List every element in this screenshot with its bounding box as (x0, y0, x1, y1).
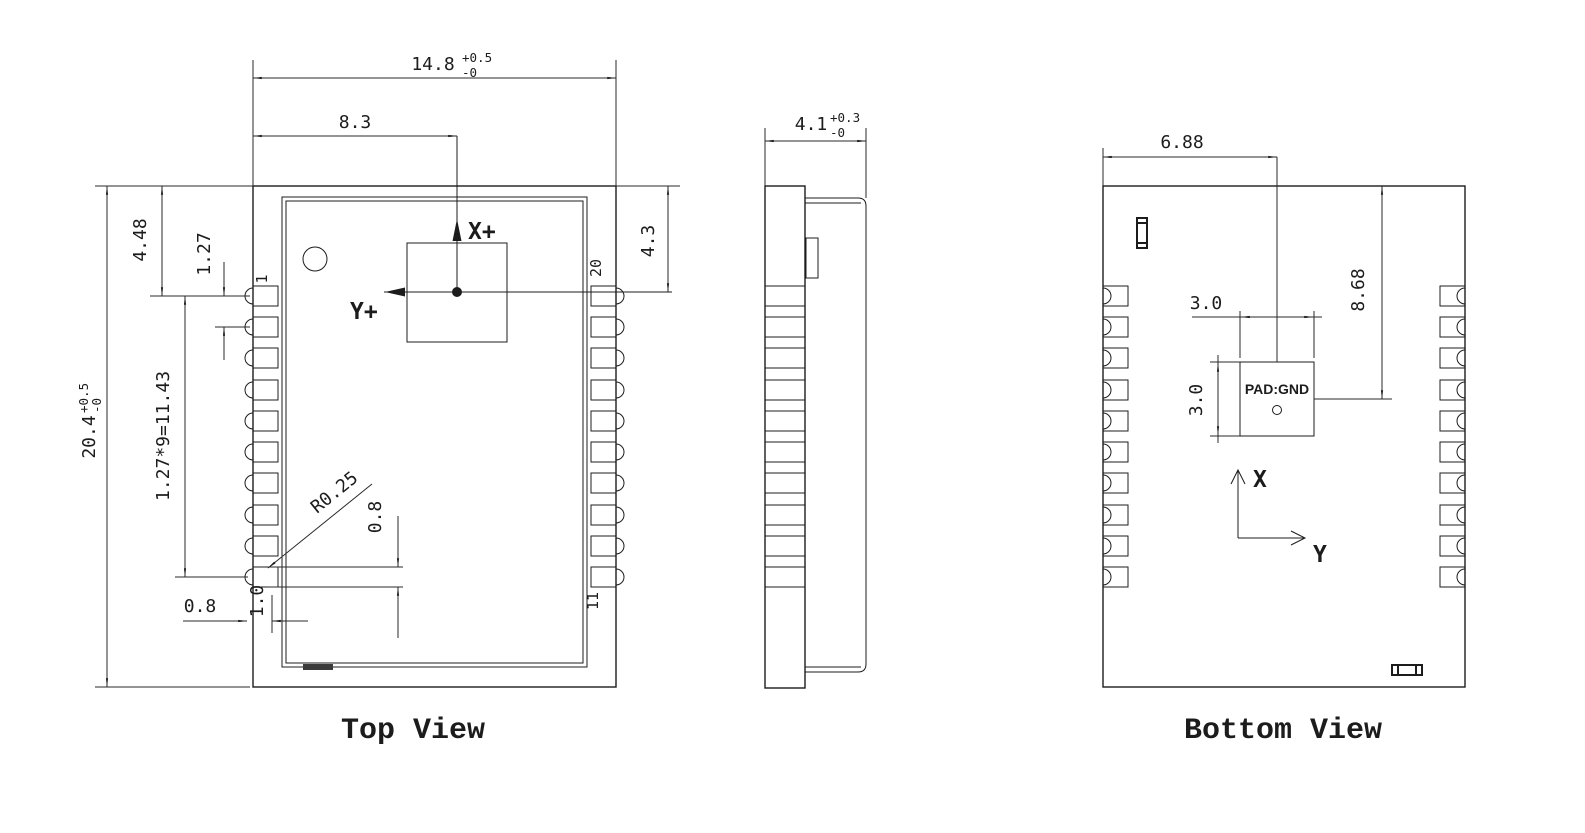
dim-pad-center-from-left: 6.88 (1103, 132, 1277, 362)
castellated-pin (1103, 536, 1128, 556)
dim-height-tol-minus: -0 (89, 398, 104, 413)
dim-pitch-total: 1.27*9=11.43 (153, 296, 248, 577)
dim-center-offset-y: 4.3 (616, 186, 680, 292)
dim-pad-width-value: 0.8 (365, 501, 386, 534)
dim-pad-length-value: 1.0 (247, 585, 268, 618)
side-pad-stripe (765, 536, 805, 556)
mechanical-drawing-page: X+ Y+ 1 20 11 14.8 +0.5 -0 8.3 (0, 0, 1585, 833)
bottom-view-component-top (1137, 218, 1147, 248)
castellated-pin (591, 442, 624, 462)
dim-radius-value: R0.25 (307, 468, 362, 518)
dim-gnd-pad-width: 3.0 (1190, 293, 1322, 358)
dim-gnd-pad-height: 3.0 (1186, 355, 1240, 443)
dim-pitch-total-value: 1.27*9=11.43 (153, 371, 174, 501)
side-pad-stripe (765, 411, 805, 431)
castellated-pin (245, 536, 278, 556)
castellated-pin (1103, 473, 1128, 493)
shield-tab (303, 664, 333, 670)
castellated-pin (1440, 505, 1465, 525)
pin1-indicator-circle (303, 247, 327, 271)
bottom-view: PAD:GND 6.88 8.68 3.0 (1103, 132, 1465, 748)
castellated-pin (1103, 286, 1128, 306)
castellated-pin (1440, 380, 1465, 400)
dim-thickness-tol-minus: -0 (830, 125, 845, 140)
side-pad-stripe (765, 286, 805, 306)
dim-pin1-offset-value: 4.48 (130, 218, 151, 261)
bottom-view-component-bottom (1392, 665, 1422, 675)
castellated-pin (1440, 536, 1465, 556)
side-view-pad-stripes (765, 286, 805, 587)
castellated-pin (245, 567, 278, 587)
side-pad-stripe (765, 442, 805, 462)
castellated-pin (1103, 411, 1128, 431)
castellated-pin (245, 505, 278, 525)
top-view-shield-outer (282, 197, 587, 667)
castellated-pin (591, 380, 624, 400)
dim-pin1-from-top: 4.48 (130, 186, 250, 296)
x-plus-arrowhead (453, 219, 462, 241)
bottom-view-pins-right (1440, 286, 1465, 587)
castellated-pin (591, 567, 624, 587)
top-view-shield-inner (286, 201, 583, 663)
castellated-pin (1440, 567, 1465, 587)
castellated-pin (591, 473, 624, 493)
side-pad-stripe (765, 567, 805, 587)
dim-pad-h-value: 3.0 (1186, 384, 1207, 417)
dim-width-tol-plus: +0.5 (462, 50, 492, 65)
top-view: X+ Y+ 1 20 11 14.8 +0.5 -0 8.3 (76, 50, 680, 748)
castellated-pin (1440, 411, 1465, 431)
castellated-pin (1103, 505, 1128, 525)
x-axis-label: X (1253, 467, 1267, 493)
castellated-pin (1440, 473, 1465, 493)
dim-edge-and-pad-length: 0.8 1.0 (183, 585, 308, 633)
castellated-pin (1440, 348, 1465, 368)
castellated-pin (1440, 286, 1465, 306)
dim-868-value: 8.68 (1348, 268, 1369, 311)
dim-pad-radius: R0.25 (268, 468, 372, 568)
top-view-pins-left (245, 286, 278, 587)
dim-center-y-value: 4.3 (638, 225, 659, 258)
castellated-pin (591, 348, 624, 368)
castellated-pin (1103, 567, 1128, 587)
dim-pad-w-value: 3.0 (1190, 293, 1223, 314)
bottom-view-axes: X Y (1231, 467, 1327, 568)
side-view: 4.1 +0.3 -0 (765, 110, 866, 688)
dim-thickness: 4.1 +0.3 -0 (765, 110, 866, 198)
castellated-pin (591, 505, 624, 525)
side-view-component (806, 238, 818, 278)
castellated-pin (591, 286, 624, 306)
castellated-pin (1103, 380, 1128, 400)
castellated-pin (1440, 442, 1465, 462)
gnd-pad-label: PAD:GND (1245, 381, 1309, 397)
top-view-pins-right (591, 286, 624, 587)
side-pad-stripe (765, 380, 805, 400)
dim-height-value: 20.4 (79, 415, 100, 458)
castellated-pin (1103, 442, 1128, 462)
gnd-pad-via (1273, 406, 1282, 415)
castellated-pin (245, 442, 278, 462)
castellated-pin (1103, 348, 1128, 368)
castellated-pin (245, 473, 278, 493)
dim-thickness-value: 4.1 (795, 114, 828, 135)
castellated-pin (591, 317, 624, 337)
side-pad-stripe (765, 348, 805, 368)
top-view-title: Top View (341, 714, 485, 748)
castellated-pin (245, 348, 278, 368)
dim-pad-center-from-top: 8.68 (1314, 186, 1392, 399)
pin11-number: 11 (584, 592, 602, 610)
dim-pad-width: 0.8 (268, 501, 403, 638)
castellated-pin (591, 411, 624, 431)
pin1-number: 1 (253, 274, 271, 283)
castellated-pin (245, 411, 278, 431)
dim-edge-clearance-value: 0.8 (184, 596, 217, 617)
dim-thickness-tol-plus: +0.3 (830, 110, 860, 125)
dim-width-value: 14.8 (411, 54, 454, 75)
side-pad-stripe (765, 505, 805, 525)
side-pad-stripe (765, 317, 805, 337)
bottom-view-pins-left (1103, 286, 1128, 587)
gnd-pad-outline (1240, 362, 1314, 436)
y-axis-label: Y (1313, 542, 1327, 568)
dim-pitch-value: 1.27 (194, 232, 215, 275)
y-plus-arrowhead (385, 288, 405, 297)
x-plus-label: X+ (468, 219, 496, 245)
top-view-pcb-outline (253, 186, 616, 687)
dim-688-value: 6.88 (1160, 132, 1203, 153)
pin20-number: 20 (587, 259, 605, 277)
gnd-pad: PAD:GND (1240, 362, 1314, 436)
side-view-pcb (765, 186, 805, 688)
drawing-canvas: X+ Y+ 1 20 11 14.8 +0.5 -0 8.3 (0, 0, 1585, 833)
dim-center-x-value: 8.3 (339, 112, 372, 133)
side-pad-stripe (765, 473, 805, 493)
castellated-pin (1103, 317, 1128, 337)
side-view-shield (805, 198, 866, 672)
dim-width-tol-minus: -0 (462, 65, 477, 80)
castellated-pin (1440, 317, 1465, 337)
castellated-pin (245, 380, 278, 400)
y-plus-label: Y+ (350, 299, 378, 325)
dim-overall-width: 14.8 +0.5 -0 (253, 50, 616, 186)
bottom-view-title: Bottom View (1184, 714, 1382, 748)
dim-center-offset-x: 8.3 (253, 112, 457, 136)
castellated-pin (591, 536, 624, 556)
